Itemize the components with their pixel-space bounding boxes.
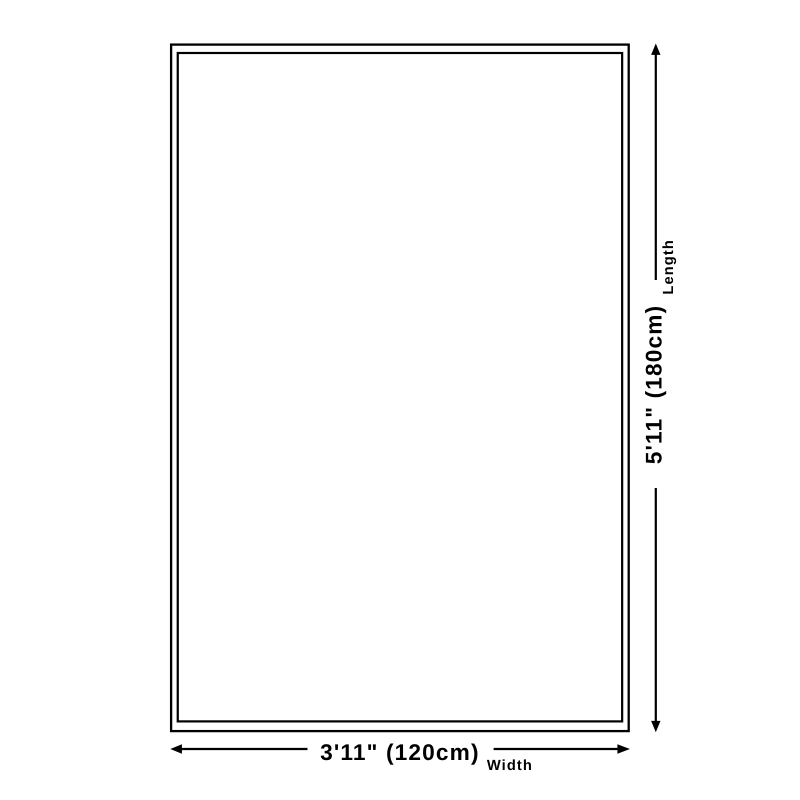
svg-text:Width: Width bbox=[487, 758, 533, 774]
svg-text:5'11" (180cm): 5'11" (180cm) bbox=[640, 305, 666, 465]
svg-text:3'11" (120cm): 3'11" (120cm) bbox=[320, 739, 480, 765]
svg-text:Length: Length bbox=[661, 239, 677, 295]
